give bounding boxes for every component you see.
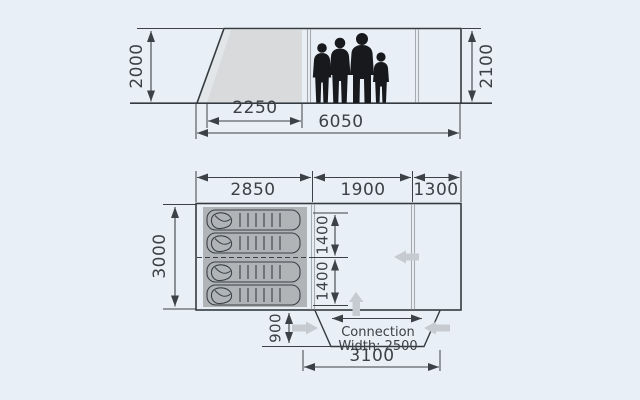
entrance-left-arrow-icon [394, 251, 419, 264]
dim-tunnel-depth: 900 [266, 313, 289, 343]
dim-tunnel-width: 3100 [303, 346, 440, 371]
child-silhouette [373, 52, 389, 102]
berth-lower-label: 1400 [313, 261, 331, 301]
tunnel-depth-label: 900 [266, 313, 284, 343]
tunnel-right-arrow-icon [292, 322, 318, 335]
plan-canopy-width-label: 1300 [413, 180, 458, 200]
family-silhouette-icon [313, 33, 389, 103]
dim-berths: 1400 1400 [311, 213, 348, 306]
connection-label-line1: Connection [341, 325, 415, 340]
tunnel-width-label: 3100 [349, 346, 394, 366]
elevation-height-right-label: 2100 [477, 43, 497, 88]
dim-height-right: 2100 [462, 29, 497, 102]
elevation-height-left-label: 2000 [127, 43, 147, 88]
diagram-canvas: 2000 2100 2250 6050 [0, 0, 640, 400]
elevation-view: 2000 2100 2250 6050 [127, 29, 497, 140]
dim-top-widths: 2850 1900 1300 [196, 171, 461, 202]
berth-upper-label: 1400 [313, 215, 331, 255]
adult-silhouette [330, 38, 351, 103]
floorplan-view: 2850 1900 1300 3000 1400 1400 Connection… [150, 171, 461, 371]
elevation-total-length-label: 6050 [318, 112, 363, 132]
elevation-door-width-label: 2250 [232, 98, 277, 118]
plan-depth-label: 3000 [150, 233, 170, 278]
adult-silhouette [350, 33, 374, 103]
plan-living-width-label: 1900 [340, 180, 385, 200]
plan-sleeping-width-label: 2850 [230, 180, 275, 200]
dim-depth: 3000 [150, 205, 196, 310]
tent-dimensions-diagram: 2000 2100 2250 6050 [0, 0, 640, 400]
inner-up-arrow-icon [349, 292, 364, 316]
tunnel-left-arrow-icon [424, 322, 450, 335]
adult-silhouette [313, 43, 331, 102]
